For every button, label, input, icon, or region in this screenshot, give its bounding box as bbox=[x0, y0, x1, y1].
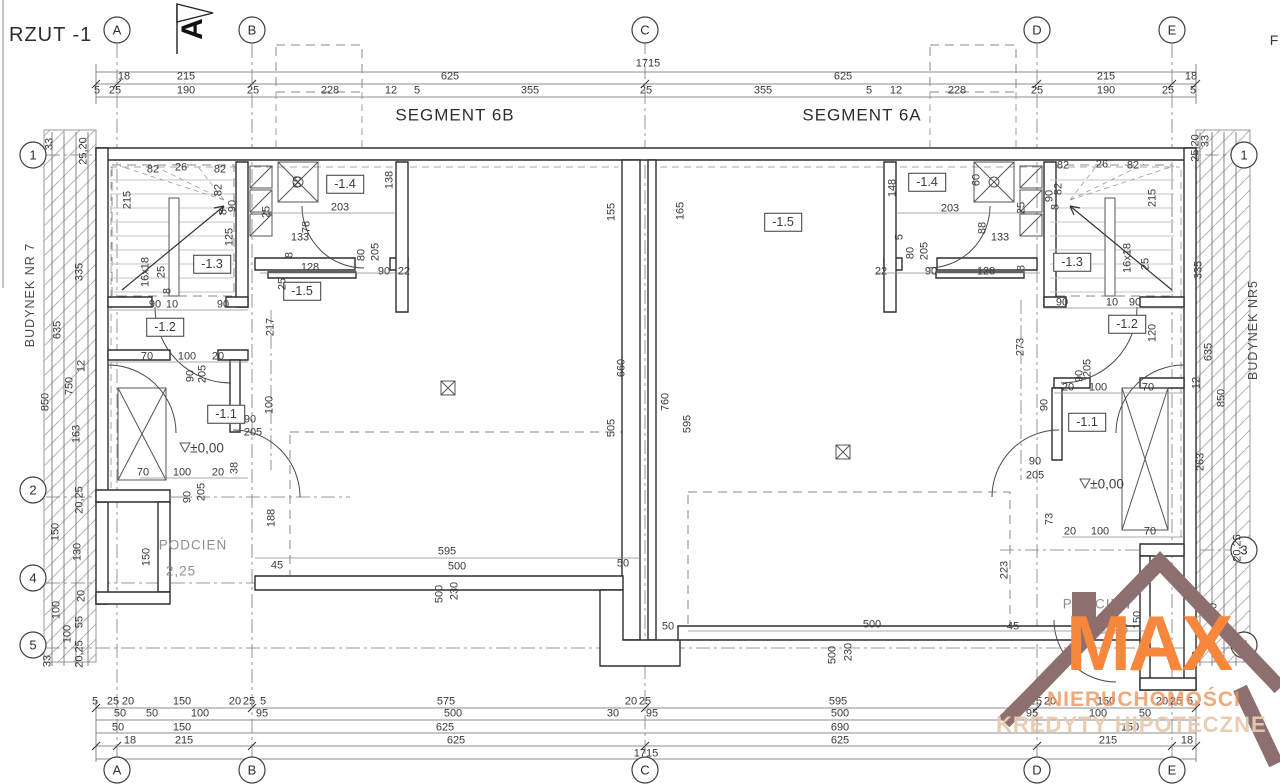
dim-label: 70 bbox=[137, 468, 149, 479]
axis-label: E bbox=[1168, 24, 1177, 37]
dim-label: 1715 bbox=[634, 749, 658, 760]
room-label: -1.2 bbox=[146, 318, 184, 337]
dim-label: 5 bbox=[260, 697, 266, 708]
dim-label: 500 bbox=[435, 585, 446, 603]
dim-label: 575 bbox=[437, 697, 455, 708]
axis-label: 2 bbox=[29, 484, 36, 497]
dim-label: 5 bbox=[866, 86, 872, 97]
dim-label: 100 bbox=[173, 468, 191, 479]
page-title: RZUT -1 bbox=[9, 24, 92, 47]
dim-label: 50 bbox=[617, 559, 629, 570]
axis-label: A bbox=[113, 24, 122, 37]
dim-label: 500 bbox=[448, 562, 466, 573]
dim-label: 205 bbox=[244, 428, 262, 439]
axis-label: D bbox=[1032, 24, 1041, 37]
dim-label: 50 bbox=[114, 709, 126, 720]
dim-label: 760 bbox=[661, 393, 672, 411]
dim-label: 18 bbox=[118, 72, 130, 83]
room-label: -1.4 bbox=[326, 175, 364, 194]
dim-label: 165 bbox=[676, 202, 687, 220]
building-label: BUDYNEK NR 7 bbox=[24, 243, 37, 347]
dim-label: 22 bbox=[875, 267, 887, 278]
dim-label: 505 bbox=[607, 419, 618, 437]
dim-label: 25 bbox=[640, 86, 652, 97]
dim-label: 18 bbox=[124, 736, 136, 747]
dim-label: 8 bbox=[285, 252, 296, 258]
dim-label: 355 bbox=[521, 86, 539, 97]
dim-label: 82 bbox=[214, 165, 226, 176]
dim-label: 190 bbox=[1097, 86, 1115, 97]
dim-label: 100 bbox=[191, 709, 209, 720]
room-label: -1.1 bbox=[207, 405, 245, 424]
text-label: F bbox=[1270, 33, 1279, 47]
dim-label: 215 bbox=[175, 736, 193, 747]
dim-label: 150 bbox=[51, 523, 62, 541]
dim-label: 95 bbox=[256, 709, 268, 720]
dim-label: 1715 bbox=[636, 59, 660, 70]
dim-label: 25 bbox=[262, 206, 273, 218]
dim-label: 80 bbox=[357, 249, 368, 261]
dim-label: 190 bbox=[177, 86, 195, 97]
dim-label: 205 bbox=[198, 365, 209, 383]
dim-label: 90 bbox=[1029, 457, 1041, 468]
axis-label: C bbox=[640, 24, 649, 37]
dim-label: 205 bbox=[1026, 471, 1044, 482]
dim-label: 5 bbox=[414, 86, 420, 97]
dim-label: 50 bbox=[146, 709, 158, 720]
dim-label: 150 bbox=[173, 697, 191, 708]
dim-label: 188 bbox=[267, 509, 278, 527]
dim-label: 25,20 bbox=[79, 137, 90, 165]
dim-label: 20,25 bbox=[75, 486, 86, 514]
dim-label: 25 bbox=[1017, 202, 1028, 214]
dim-label: 90 bbox=[378, 267, 390, 278]
porch-label: PODCIEŃ bbox=[159, 538, 228, 552]
dim-label: 60 bbox=[972, 174, 983, 186]
dim-label: 82 bbox=[1127, 161, 1139, 172]
watermark-logo: MAX NIERUCHOMOŚCI KREDYTY HIPOTECZNE bbox=[990, 548, 1280, 784]
dim-label: 205 bbox=[197, 483, 208, 501]
dim-label: 26 bbox=[175, 163, 187, 174]
dim-label: 33 bbox=[1201, 135, 1212, 147]
dim-label: 230 bbox=[450, 582, 461, 600]
dim-label: 80 bbox=[906, 247, 917, 259]
dim-label: 215 bbox=[1097, 72, 1115, 83]
dim-label: 205 bbox=[920, 242, 931, 260]
level-label: ±0,00 bbox=[190, 441, 224, 455]
room-label: -1.3 bbox=[1053, 253, 1091, 272]
room-label: -1.5 bbox=[283, 282, 321, 301]
porch-label: 2,25 bbox=[166, 564, 196, 578]
dim-label: 70 bbox=[141, 352, 153, 363]
dim-label: 228 bbox=[948, 86, 966, 97]
dim-label: 25 bbox=[107, 697, 119, 708]
dim-label: 26 bbox=[1096, 160, 1108, 171]
dim-label: 335 bbox=[1194, 261, 1205, 279]
segment-label: SEGMENT 6B bbox=[395, 107, 514, 124]
dim-label: 25 bbox=[278, 278, 289, 290]
dim-label: 625 bbox=[447, 736, 465, 747]
dim-label: 100 bbox=[1091, 527, 1109, 538]
north-arrow-letter: A bbox=[178, 18, 208, 40]
dim-label: 595 bbox=[683, 415, 694, 433]
dim-label: 90 bbox=[1040, 399, 1051, 411]
axis-label: 1 bbox=[1240, 149, 1247, 162]
dim-label: 8 bbox=[1017, 265, 1028, 271]
dim-label: 33 bbox=[45, 138, 56, 150]
dim-label: 70 bbox=[1142, 383, 1154, 394]
dim-label: 33 bbox=[43, 655, 54, 667]
dim-label: 12 bbox=[890, 86, 902, 97]
dim-label: 500 bbox=[444, 709, 462, 720]
dim-label: 25 bbox=[1141, 258, 1152, 270]
dim-label: 90 bbox=[925, 267, 937, 278]
dim-label: 20 bbox=[122, 697, 134, 708]
dim-label: 138 bbox=[385, 171, 396, 189]
dim-label: 100 bbox=[52, 601, 63, 619]
dim-label: 635 bbox=[53, 321, 64, 339]
dim-label: 205 bbox=[371, 243, 382, 261]
dim-label: 100 bbox=[1089, 383, 1107, 394]
dim-label: 12 bbox=[77, 360, 88, 372]
axis-label: B bbox=[248, 24, 257, 37]
dim-label: 595 bbox=[438, 547, 456, 558]
building-label: BUDYNEK NR5 bbox=[1247, 280, 1260, 380]
dim-label: 55 bbox=[75, 616, 86, 628]
room-label: -1.5 bbox=[764, 213, 802, 232]
dim-label: 82 bbox=[1057, 161, 1069, 172]
dim-label: 18 bbox=[1185, 72, 1197, 83]
dim-label: 90 bbox=[228, 200, 239, 212]
dim-label: 50 bbox=[662, 622, 674, 633]
room-label: -1.1 bbox=[1068, 413, 1106, 432]
dim-label: 217 bbox=[266, 318, 277, 336]
dim-label: 215 bbox=[177, 72, 195, 83]
axis-label: 5 bbox=[29, 639, 36, 652]
dim-label: 500 bbox=[828, 646, 839, 664]
dim-label: 148 bbox=[888, 179, 899, 197]
dim-label: 690 bbox=[831, 723, 849, 734]
dim-label: 125 bbox=[225, 228, 236, 246]
dim-label: 100 bbox=[265, 396, 276, 414]
dim-label: 20 bbox=[1062, 383, 1074, 394]
dim-label: 88 bbox=[978, 222, 989, 234]
dim-label: 100 bbox=[63, 625, 74, 643]
dim-label: 625 bbox=[441, 72, 459, 83]
dim-label: 82 bbox=[1054, 183, 1065, 195]
dim-label: 355 bbox=[754, 86, 772, 97]
dim-label: 335 bbox=[75, 263, 86, 281]
dim-label: 625 bbox=[834, 72, 852, 83]
dim-label: 750 bbox=[65, 377, 76, 395]
dim-label: 73 bbox=[1045, 513, 1056, 525]
dim-label: 20,25 bbox=[75, 640, 86, 668]
dim-label: 150 bbox=[142, 548, 153, 566]
dim-label: 8 bbox=[163, 288, 174, 294]
dim-label: 625 bbox=[831, 736, 849, 747]
dim-label: 8 bbox=[1051, 204, 1062, 210]
dim-label: 130 bbox=[73, 543, 84, 561]
dim-label: 10 bbox=[166, 300, 178, 311]
floor-plan: FASEGMENT 6BSEGMENT 6ABUDYNEK NR 7BUDYNE… bbox=[0, 0, 1280, 784]
level-label: ±0,00 bbox=[1090, 477, 1124, 491]
logo-line2: NIERUCHOMOŚCI bbox=[1047, 688, 1241, 712]
dim-label: 120 bbox=[1148, 324, 1159, 342]
dim-label: 5 bbox=[1190, 86, 1196, 97]
dim-label: 228 bbox=[321, 86, 339, 97]
dim-label: 595 bbox=[829, 697, 847, 708]
axis-label: C bbox=[640, 764, 649, 777]
dim-label: 150 bbox=[173, 723, 191, 734]
dim-label: 90 bbox=[217, 300, 229, 311]
dim-label: 30 bbox=[607, 709, 619, 720]
dim-label: 16x18 bbox=[141, 257, 152, 287]
dim-label: 95 bbox=[646, 709, 658, 720]
axis-label: B bbox=[248, 764, 257, 777]
dim-label: 230 bbox=[844, 643, 855, 661]
dim-label: 70 bbox=[1144, 527, 1156, 538]
dim-label: 215 bbox=[1148, 189, 1159, 207]
dim-label: 25 bbox=[243, 697, 255, 708]
dim-label: 25 bbox=[1031, 86, 1043, 97]
dim-label: 133 bbox=[991, 233, 1009, 244]
dim-label: 203 bbox=[331, 203, 349, 214]
dim-label: 90 bbox=[183, 491, 194, 503]
dim-label: 25 bbox=[639, 697, 651, 708]
dim-label: 5 bbox=[94, 86, 100, 97]
dim-label: 5 bbox=[895, 234, 906, 240]
dim-label: 215 bbox=[123, 191, 134, 209]
dim-label: 128 bbox=[977, 267, 995, 278]
dim-label: 203 bbox=[941, 204, 959, 215]
dim-label: 155 bbox=[607, 203, 618, 221]
dim-label: 500 bbox=[863, 620, 881, 631]
dim-label: 20 bbox=[229, 697, 241, 708]
dim-label: 128 bbox=[301, 263, 319, 274]
dim-label: 22 bbox=[398, 267, 410, 278]
dim-label: 20 bbox=[77, 590, 88, 602]
dim-label: 20 bbox=[1064, 527, 1076, 538]
dim-label: 90 bbox=[244, 415, 256, 426]
dim-label: 25 bbox=[1162, 86, 1174, 97]
dim-label: 90 bbox=[1056, 298, 1068, 309]
room-label: -1.2 bbox=[1108, 315, 1146, 334]
dim-label: 50 bbox=[112, 723, 124, 734]
axis-label: 4 bbox=[29, 572, 36, 585]
dim-label: 163 bbox=[72, 425, 83, 443]
dim-label: 45 bbox=[271, 561, 283, 572]
dim-label: 90 bbox=[149, 300, 161, 311]
dim-label: 635 bbox=[1204, 343, 1215, 361]
dim-label: 90 bbox=[186, 370, 197, 382]
dim-label: 10 bbox=[1106, 298, 1118, 309]
dim-label: 20 bbox=[212, 468, 224, 479]
dim-label: 12 bbox=[385, 86, 397, 97]
dim-label: 20 bbox=[212, 352, 224, 363]
dim-label: 850 bbox=[1217, 389, 1228, 407]
dim-label: 625 bbox=[436, 723, 454, 734]
axis-label: 1 bbox=[29, 149, 36, 162]
logo-line3: KREDYTY HIPOTECZNE bbox=[996, 712, 1267, 738]
dim-label: 850 bbox=[41, 393, 52, 411]
dim-label: 12 bbox=[1192, 377, 1203, 389]
dim-label: 273 bbox=[1016, 338, 1027, 356]
dim-label: 660 bbox=[617, 359, 628, 377]
dim-label: 38 bbox=[230, 462, 241, 474]
segment-label: SEGMENT 6A bbox=[802, 107, 921, 124]
dim-label: 90 bbox=[1129, 298, 1141, 309]
dim-label: 5 bbox=[92, 697, 98, 708]
dim-label: 82 bbox=[147, 165, 159, 176]
dim-label: 100 bbox=[178, 352, 196, 363]
dim-label: 20 bbox=[625, 697, 637, 708]
dim-label: 90 bbox=[1075, 370, 1086, 382]
dim-label: 133 bbox=[291, 233, 309, 244]
dim-label: 82 bbox=[214, 184, 225, 196]
room-label: -1.4 bbox=[908, 173, 946, 192]
dim-label: 25 bbox=[109, 86, 121, 97]
room-label: -1.3 bbox=[193, 255, 231, 274]
logo-brand: MAX bbox=[1066, 604, 1230, 682]
dim-label: 16x18 bbox=[1123, 243, 1134, 273]
dim-label: 60 bbox=[293, 176, 304, 188]
axis-label: A bbox=[113, 764, 122, 777]
dim-label: 25 bbox=[157, 266, 168, 278]
dim-label: 263 bbox=[1196, 453, 1207, 471]
dim-label: 500 bbox=[831, 709, 849, 720]
dim-label: 25 bbox=[247, 86, 259, 97]
